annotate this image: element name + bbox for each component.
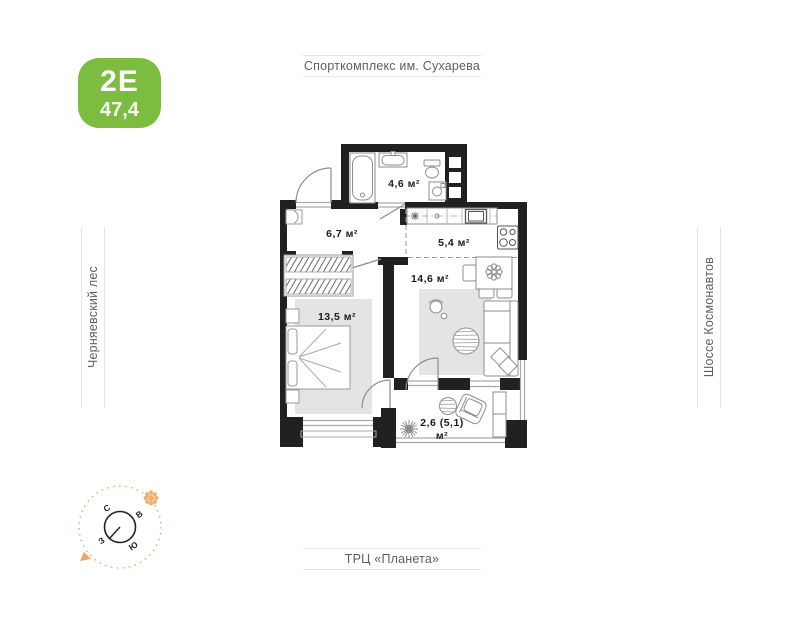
- compass-north: С: [101, 502, 112, 514]
- sun-path-arrow: [80, 552, 91, 561]
- sun-icon: [144, 491, 159, 506]
- landmark-bottom: ТРЦ «Планета»: [303, 548, 481, 570]
- stove: [498, 226, 519, 249]
- nightstand: [286, 390, 299, 403]
- balcony-cabinet: [493, 392, 506, 437]
- hall-mirror: [286, 210, 302, 224]
- shaft-openings: [449, 157, 461, 198]
- balcony-plant-icon: [400, 420, 418, 438]
- bed: [286, 326, 350, 389]
- room-label-bedroom: 13,5 м²: [318, 311, 356, 323]
- bathroom-sink: [379, 152, 407, 168]
- wardrobe: [284, 255, 353, 296]
- apartment-badge: 2Е 47,4: [78, 58, 161, 128]
- landmark-left: Черняевский лес: [81, 227, 105, 408]
- landmark-bottom-label: ТРЦ «Планета»: [345, 552, 439, 566]
- toilet: [424, 160, 440, 178]
- pillow: [288, 361, 297, 386]
- floorplan-page: 2Е 47,4 Спорткомплекс им. Сухарева ТРЦ «…: [0, 0, 800, 628]
- apartment-type-label: 2Е: [100, 67, 139, 97]
- entrance-door: [296, 168, 331, 203]
- dining-chair: [497, 289, 512, 298]
- landmark-top-label: Спорткомплекс им. Сухарева: [304, 59, 480, 73]
- nightstand: [286, 309, 299, 323]
- room-label-living: 14,6 м²: [411, 273, 449, 285]
- bathtub: [350, 153, 375, 203]
- landmark-left-label: Черняевский лес: [86, 266, 100, 368]
- bedroom-window-sill: [301, 431, 376, 437]
- landmark-top: Спорткомплекс им. Сухарева: [303, 55, 481, 77]
- room-label-hallway: 6,7 м²: [326, 228, 358, 240]
- compass-west: З: [96, 535, 106, 546]
- landmark-right-label: Шоссе Космонавтов: [702, 257, 716, 377]
- dining-chair: [479, 289, 494, 298]
- balcony-furniture: [400, 392, 506, 438]
- compass: С В Ю З: [79, 486, 161, 568]
- landmark-right: Шоссе Космонавтов: [697, 227, 721, 408]
- compass-south: Ю: [127, 539, 140, 552]
- striped-ball-plant: [439, 398, 457, 415]
- compass-east: В: [134, 508, 145, 520]
- apartment-area-label: 47,4: [100, 100, 139, 120]
- round-pouf: [453, 328, 479, 354]
- living-door: [352, 259, 381, 268]
- room-label-kitchen: 5,4 м²: [438, 237, 470, 249]
- fridge-icon: [411, 212, 419, 220]
- pillow: [288, 329, 297, 354]
- washing-machine: [429, 182, 446, 200]
- kitchen-sink: [466, 210, 487, 224]
- room-label-balcony: 2,6 (5,1): [420, 417, 464, 429]
- dining-chair: [463, 265, 476, 281]
- room-label-balcony-units: м²: [436, 430, 448, 442]
- room-label-bathroom: 4,6 м²: [388, 178, 420, 190]
